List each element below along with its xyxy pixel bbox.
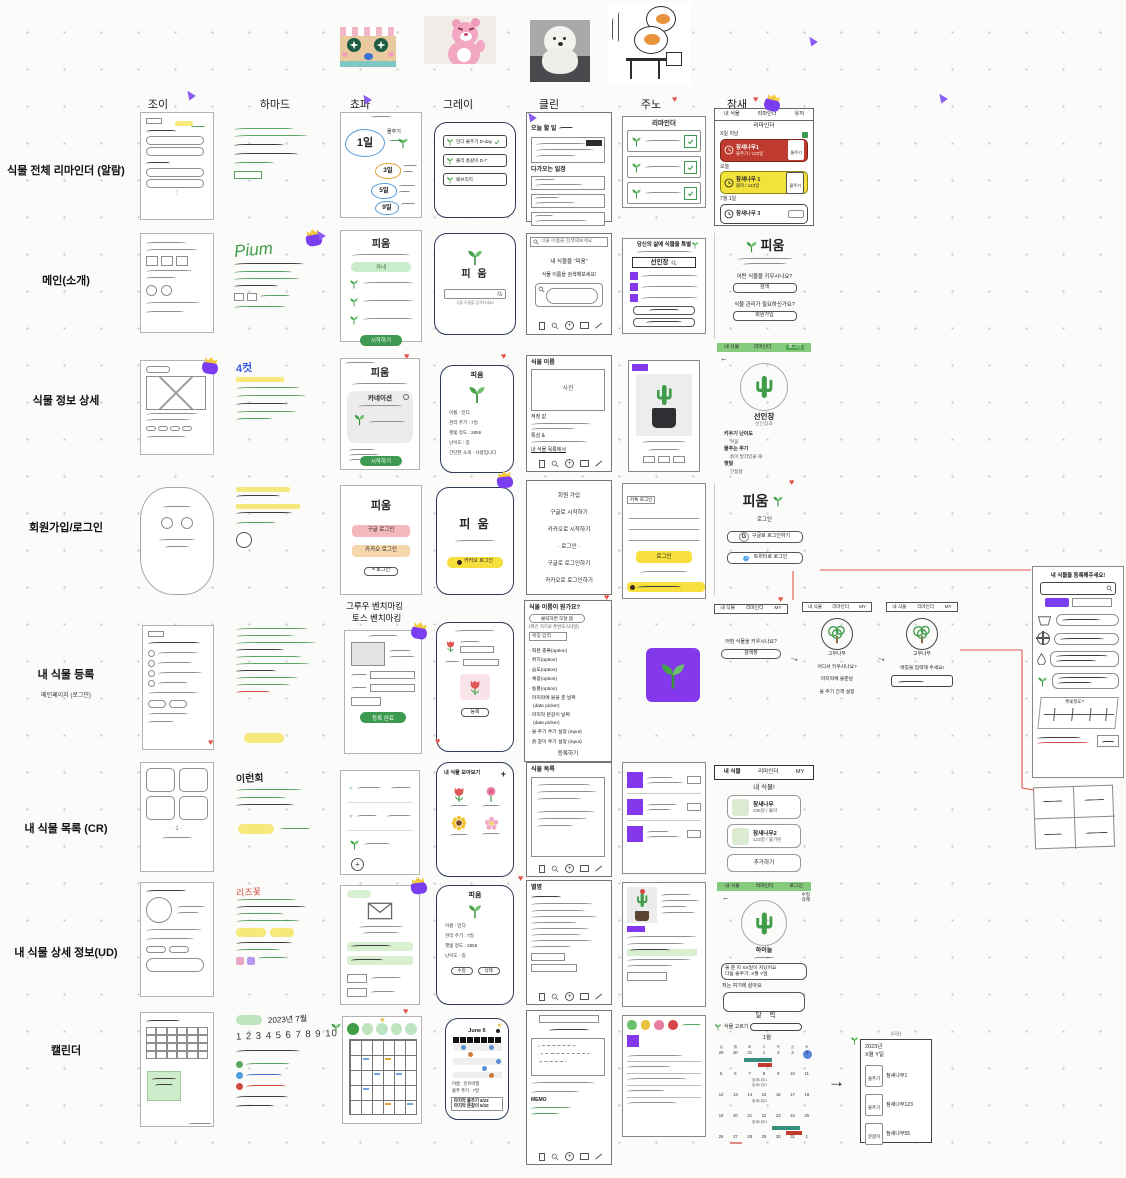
list-item: 27	[728, 1134, 742, 1155]
hamad-detail-notes[interactable]: 4컷	[236, 360, 328, 450]
juno-main-wireframe[interactable]: 당신의 삶에 식물을 특별 선인장	[622, 238, 706, 334]
list-item: 햇빛 정도 : 2855	[445, 943, 505, 949]
sparrow-list-wireframe[interactable]: 내 식물리마인더MY 내 식물! 참새나무235일 / 물마 참새나무2123일…	[714, 765, 814, 877]
tree-icon	[911, 623, 933, 645]
add-plant-button[interactable]: 추가하기	[727, 854, 801, 872]
event-bar-water	[772, 1126, 800, 1130]
overdue-card[interactable]: 참새나무1물주기 / 123일 물주기	[720, 139, 808, 162]
check-box[interactable]	[684, 135, 697, 148]
water-drop-icon	[1037, 653, 1046, 665]
kakao-login-button[interactable]: 카카오 로그인	[447, 557, 503, 568]
list-item: · 채광(option)	[529, 675, 607, 682]
event-bar-repot	[786, 1131, 802, 1135]
tab-reminder[interactable]: 리마인더	[758, 112, 777, 118]
joy-calendar-sketch[interactable]	[140, 1012, 214, 1127]
word2-handwriting: 리즈꽃	[236, 882, 328, 899]
cactus-icon	[753, 910, 775, 937]
list-item: 20	[728, 1113, 742, 1134]
tab-bar: 내 식물 리마인더 로그인	[717, 343, 811, 352]
kakao-banner[interactable]	[627, 582, 705, 592]
row-label-main[interactable]: 메인(소개)	[2, 272, 130, 288]
juno-reminder-wireframe[interactable]: 리마인더	[622, 116, 706, 208]
search-icon	[497, 291, 503, 297]
list-item: 29	[757, 1134, 771, 1155]
clock-icon	[724, 145, 734, 155]
gray-main-phone[interactable]: 피 움 식물 이름을 검색하세요!	[434, 233, 516, 335]
sticker-patch-2	[644, 34, 660, 45]
list-item: · 습도(option)	[529, 666, 607, 673]
list-item: 관리 주기 : 7일	[445, 933, 505, 939]
list-item: 카카오로 로그인하기	[545, 576, 593, 584]
plant-fields: 이름 : 민디관리 주기 : 7일햇빛 정도 : 2855난이도 : 중간단한 …	[449, 410, 505, 456]
add-icon: +	[565, 864, 574, 873]
search-icon	[551, 1153, 559, 1161]
tulip-icon	[445, 639, 456, 653]
chopa-alarm-wireframe[interactable]: 1일 물주기 3일 5일 9일	[340, 112, 422, 218]
gray-register-phone[interactable]: 등록	[436, 622, 514, 752]
done-tag	[586, 140, 602, 146]
kakao-login-button[interactable]: 로그인	[636, 551, 692, 563]
list-item: (date picker)	[529, 721, 607, 726]
login-lines: 회원 가입구글로 시작하기카카오로 시작하기· 로그인 ·구글로 로그인하기카카…	[527, 491, 611, 584]
search-icon	[1106, 585, 1113, 592]
chopa-detail-wireframe[interactable]: 피움 카네이션 시작하기	[340, 358, 420, 470]
list-item: 5	[714, 1071, 728, 1092]
joy-register-sketch[interactable]	[142, 625, 214, 750]
notification-row: 민디 물주기 D-day	[443, 135, 507, 148]
pink-bear-image[interactable]	[424, 16, 496, 64]
clean-main-wireframe[interactable]: 식물 이름을 검색해보세요 내 식물을 "피움" 식물 이름을 검색해보세요! …	[526, 233, 612, 335]
list-item: 30	[728, 1050, 742, 1071]
sprout-icon	[691, 241, 699, 249]
search-bar[interactable]: 식물 이름을 검색해보세요	[530, 237, 608, 247]
row-label-register[interactable]: 내 식물 등록	[2, 666, 130, 682]
hamad-calendar-notes[interactable]: 2023년 7월 1 2 3 4 5 6 7 8 9 10	[236, 1015, 328, 1135]
plain-login-button[interactable]: = 로그인	[364, 567, 398, 576]
list-item: (date picker)	[529, 704, 607, 709]
heart-sticker[interactable]: ♥	[789, 478, 794, 487]
clean-list-wireframe[interactable]: 식물 목록 +	[526, 762, 612, 877]
day9-bubble: 9일	[375, 201, 399, 215]
list-item: 31	[785, 1134, 799, 1155]
clean-calendar-wireframe[interactable]: MEMO +	[526, 1010, 612, 1165]
register-done-button[interactable]: 등록 완료	[360, 712, 406, 723]
clean-login-wireframe[interactable]: 회원 가입구글로 시작하기카카오로 시작하기· 로그인 ·구글로 로그인하기카카…	[526, 480, 612, 595]
plant-avatar[interactable]	[391, 1023, 403, 1035]
star-badge: ★	[379, 1016, 385, 1024]
sparrow-main-wireframe[interactable]: 피움 어떤 식물을 키우시나요? 검색 식물 관리가 필요하신가요? 회원가입	[714, 233, 814, 339]
sparrow-register-panel-2[interactable]: 내 식물리마인더MY 고무나무 어디서 키우시나요? 마지막에 물준날 물 주기…	[802, 602, 872, 716]
row-sublabel-register: 메인페이지 (로그인)	[2, 690, 130, 699]
joy-list-sketch[interactable]: · 1 ·	[140, 762, 214, 872]
list-item: · 마지막에 물을 준 날짜	[529, 694, 607, 701]
4cut-handwriting: 4컷	[236, 357, 329, 376]
plant-avatar-circle	[741, 900, 787, 946]
sprout-icon	[850, 1036, 859, 1045]
google-login-button[interactable]: 구글 로그인	[352, 525, 410, 537]
column-header-hamad[interactable]: 하마드	[245, 96, 305, 112]
upcoming-card[interactable]: 참새나무 3	[720, 204, 808, 224]
search-button[interactable]: 검색	[733, 283, 797, 293]
flower-doodle	[627, 1020, 637, 1030]
calendar-icon	[580, 993, 589, 1000]
photo-placeholder	[351, 642, 385, 666]
list-item: 28	[743, 1134, 757, 1155]
hamad-login-notes[interactable]	[236, 487, 328, 572]
day1-label: 물주기	[387, 130, 401, 136]
gray-mydetail-phone[interactable]: 피움 이름 : 민디관리 주기 : 7일햇빛 정도 : 2855난이도 : 중 …	[436, 885, 514, 1005]
benchmark-note-2[interactable]: 토스 벤치마킹	[352, 614, 401, 624]
sparrow-calendar-wireframe[interactable]: 달 력 식물 고르기 1월 일월화수목금토 293031123456789101…	[714, 1012, 820, 1176]
heart-sticker[interactable]: ♥	[672, 95, 677, 104]
big-search-box[interactable]	[535, 283, 603, 307]
cheek-right	[388, 52, 394, 57]
flower-doodle	[654, 1020, 664, 1030]
clean-mydetail-wireframe[interactable]: 별명 +	[526, 880, 612, 1005]
juno-list-wireframe[interactable]	[622, 762, 706, 874]
search-icon	[551, 460, 559, 468]
search-box[interactable]: 선인장	[632, 257, 696, 268]
date-handwriting: 2023년 7월	[268, 1014, 308, 1025]
list-item: 이름 : 민디	[449, 410, 505, 416]
chopa-main-wireframe[interactable]: 피움 카네 시작하기	[340, 230, 422, 342]
app-title: 피움	[341, 500, 421, 513]
list-item: 카카오로 시작하기	[548, 525, 591, 533]
plant-avatar[interactable]	[347, 1023, 359, 1035]
big-arrow-icon: →	[828, 1072, 845, 1092]
calendar-icon	[580, 1153, 589, 1160]
white-button[interactable]	[1072, 598, 1112, 607]
gray-login-phone[interactable]: 피 움 카카오 로그인	[436, 487, 514, 595]
gray-list-phone[interactable]: 내 식물 모아보기 +	[436, 762, 514, 877]
calendar-icon[interactable]	[580, 322, 589, 329]
reminder-row	[627, 182, 701, 204]
hat-stripe	[340, 27, 396, 36]
list-item: 23	[771, 1113, 785, 1134]
sticker-chair	[666, 52, 682, 66]
heart-sticker[interactable]: ♥	[518, 874, 523, 883]
juno-purple-sticker[interactable]	[646, 648, 700, 702]
purple-tag	[627, 926, 645, 932]
heart-sticker[interactable]: ♥	[778, 595, 783, 604]
column-header-joy[interactable]: 조이	[128, 96, 188, 112]
list-item: · 물 주기 주기 설정 (input)	[529, 728, 607, 735]
reminder-row	[627, 156, 701, 178]
search-box[interactable]	[1040, 582, 1116, 595]
plant-card[interactable]: 카네이션	[347, 391, 413, 443]
chopa-list-wireframe[interactable]: +	[340, 770, 420, 875]
juno-detail-wireframe[interactable]	[628, 360, 700, 472]
bear-arm	[476, 40, 485, 52]
sparrow-detail-wireframe[interactable]: 내 식물 리마인더 로그인 ← 선인장 선인장과 키우기 난이도 쉬움 물주는 …	[714, 343, 814, 473]
dog-body	[542, 48, 578, 74]
check-box[interactable]	[684, 161, 697, 174]
plant-card[interactable]: 참새나무235일 / 물마	[727, 795, 801, 819]
register-button[interactable]: 등록	[461, 708, 489, 717]
sparrow-calendar-modal[interactable]: (모달) 2023년 X월 Y일 물주기참새나무1 물주기참새나무123 분갈이…	[860, 1032, 932, 1148]
plant-avatar[interactable]	[405, 1023, 417, 1035]
juno-mydetail-wireframe[interactable]	[622, 882, 706, 1007]
column-header-chopa[interactable]: 쵸파	[330, 96, 390, 112]
google-login-button[interactable]: G 구글로 로그인하기	[727, 531, 803, 543]
juno-login-wireframe[interactable]: 카톡 로그인 로그인	[622, 483, 706, 599]
teal-stripe	[340, 61, 396, 67]
hamad-alarm-notes[interactable]	[234, 125, 326, 205]
purple-square	[627, 1035, 639, 1047]
note-bubble	[1052, 673, 1119, 689]
search-input[interactable]	[444, 289, 506, 299]
column-header-clean[interactable]: 클린	[519, 96, 579, 112]
list-item: 18	[800, 1092, 814, 1113]
bookmark-icon	[539, 865, 545, 873]
search-icon	[538, 286, 545, 293]
delete-link[interactable]: 삭제	[802, 897, 810, 902]
heart-sticker[interactable]: ♥	[753, 95, 758, 104]
edit-icon	[595, 865, 602, 872]
start-button[interactable]: 시작하기	[360, 456, 402, 466]
star-eye-left	[347, 38, 361, 52]
plant-thumb	[732, 828, 749, 845]
app-title: 피움	[341, 239, 421, 251]
clock-icon	[724, 209, 734, 219]
edit-icon[interactable]	[595, 322, 602, 329]
joy-mydetail-sketch[interactable]	[140, 882, 214, 997]
check-icon	[494, 139, 500, 145]
dot-icon	[496, 1029, 500, 1033]
gray-alarm-phone[interactable]: 민디 물주기 D-day 졸리 흙갈이 D-7 페브리지	[434, 122, 516, 218]
joy-login-sketch[interactable]	[140, 487, 214, 595]
screen-title: 내 식물 모아보기	[444, 771, 480, 777]
twitter-login-button[interactable]: 트위터로 로그인	[727, 552, 803, 564]
day1-bubble: 1일	[345, 129, 385, 157]
whiteboard-canvas[interactable]: 조이 하마드 쵸파 그레이 클린 주노 참새 식물 전체 리마인더 (알람) 메…	[0, 0, 1126, 1178]
tab-user[interactable]: 유저	[795, 112, 805, 118]
tree-icon	[826, 623, 848, 645]
search-hint: 식물 이름을 검색하세요!	[435, 301, 515, 305]
bookmark-icon	[539, 460, 545, 468]
heart-sticker[interactable]: ♥	[604, 593, 609, 602]
row-label-list[interactable]: 내 식물 목록 (CR)	[2, 820, 130, 836]
clean-register-wireframe[interactable]: 식물 이름이 뭔가요? 클릭하면 모달 뜸 (여긴 거기로 폰번호스타일) 애칭…	[524, 600, 612, 762]
heart-sticker[interactable]: ♥	[403, 1007, 408, 1016]
plant-select[interactable]	[750, 1023, 802, 1031]
search-icon	[533, 239, 539, 245]
column-header-gray[interactable]: 그레이	[428, 96, 488, 112]
tab-bar: 내 식물리마인더MY	[802, 602, 872, 612]
add-icon[interactable]: +	[565, 321, 574, 330]
sparrow-mydetail-wireframe[interactable]: 내 식물리마인더로그인 수정 삭제 ← 하이늘 물 준 지 XX일이 지났어요 …	[714, 882, 814, 1008]
sprout-icon	[714, 1023, 722, 1031]
note-bubble	[1054, 633, 1119, 645]
edit-icon	[595, 993, 602, 1000]
plant-thumb	[732, 799, 749, 816]
row-label-login[interactable]: 회원가입/로그인	[2, 519, 130, 535]
avatar-chopper-image[interactable]	[340, 27, 396, 67]
tab-myplants[interactable]: 내 식물	[724, 345, 739, 351]
gray-calendar-phone[interactable]: ★ June 6 이름 : 민트바질 물주 주기 : 7일 마지막 물주기 6/…	[445, 1018, 509, 1120]
tab-myplants[interactable]: 내 식물	[724, 112, 740, 118]
list-item: 11	[800, 1071, 814, 1092]
clock-icon	[724, 178, 734, 188]
row-label-alarm[interactable]: 식물 전체 리마인더 (알람)	[2, 162, 130, 178]
nickname-input[interactable]: 애칭 입력	[529, 632, 567, 641]
row-label-calendar[interactable]: 캘린더	[2, 1042, 130, 1058]
day3-bubble: 3일	[375, 163, 401, 179]
edit-icon	[595, 460, 602, 467]
action-button[interactable]	[633, 306, 695, 315]
plant-tile[interactable]	[445, 814, 473, 839]
bear-sticker-image[interactable]	[608, 2, 690, 86]
hamad-main-notes[interactable]: Pium	[234, 238, 326, 333]
cactus-photo	[636, 374, 692, 436]
sprout-sketch-icon	[353, 413, 366, 426]
chopa-mydetail-wireframe[interactable]	[340, 885, 420, 1005]
heart-sticker[interactable]: ♥	[404, 352, 409, 361]
row-label-plant-detail[interactable]: 식물 정보 상세	[2, 392, 130, 408]
app-title: 피움	[437, 892, 513, 900]
plant-icon	[1037, 676, 1048, 687]
start-button[interactable]: 시작하기	[360, 335, 402, 346]
quadrant-sketch[interactable]	[1033, 785, 1115, 850]
crown-sticker[interactable]	[410, 881, 428, 895]
plant-avatar[interactable]	[362, 1023, 374, 1035]
list-item: 구글로 시작하기	[550, 508, 588, 516]
thumb	[627, 772, 643, 788]
list-item: 16	[771, 1092, 785, 1113]
bird-icon	[742, 554, 751, 563]
row-label-mydetail[interactable]: 내 식물 상세 정보(UD)	[2, 944, 130, 960]
edit-button[interactable]: 수정	[451, 967, 473, 975]
sparrow-reminder-wireframe[interactable]: 내 식물 리마인더 유저 리마인더 X일 지남 참새나무1물주기 / 123일 …	[714, 108, 814, 226]
water-button[interactable]: 물주기	[788, 140, 804, 160]
hamad-mydetail-notes[interactable]: 리즈꽃	[236, 885, 328, 997]
numbers-handwriting: 1 2 3 4 5 6 7 8 9 10	[236, 1029, 328, 1043]
heart-sticker[interactable]: ♥	[501, 352, 506, 361]
logo-text: 피 움	[435, 269, 515, 281]
kakao-icon	[457, 560, 462, 565]
water-button[interactable]: 물주기	[786, 172, 804, 194]
joy-detail-sketch[interactable]	[140, 360, 214, 455]
notification-row: 페브리지	[443, 173, 507, 186]
note-bubble	[1050, 651, 1119, 667]
flower-doodle	[641, 1020, 651, 1030]
list-item: · 마지막 분갈이 날짜	[529, 711, 607, 718]
benchmark-note-1[interactable]: 그루우 벤치마킹	[346, 602, 403, 612]
tab-reminder[interactable]: 리마인더	[754, 345, 772, 351]
clean-today-wireframe[interactable]: 오늘 할 일 다가오는 일정	[526, 112, 612, 222]
bear-nose	[464, 33, 468, 36]
chopa-login-wireframe[interactable]: 피움 구글 로그인 카카오 로그인 = 로그인	[340, 485, 422, 595]
search-box[interactable]: 검색창	[721, 649, 781, 659]
sunlight-slider[interactable]: 햇빛정도?	[1037, 697, 1118, 729]
plant-card[interactable]: 참새나무2123일 / 꽃기린	[727, 824, 801, 848]
category-chip[interactable]: 카네	[351, 262, 411, 272]
green-plant-doodle	[330, 1022, 342, 1034]
action-button[interactable]	[633, 318, 695, 327]
gear-icon[interactable]	[403, 394, 409, 400]
sprout-doodle-icon	[397, 137, 409, 149]
plant-tile[interactable]	[445, 785, 473, 810]
hamad-list-notes[interactable]: 이런회	[236, 772, 328, 860]
flow-arrow-icon: →	[788, 651, 802, 666]
signup-button[interactable]: 회원가입	[733, 311, 797, 321]
joy-main-sketch[interactable]	[140, 233, 214, 333]
sparrow-register-panel-3[interactable]: 내 식물리마인더MY 고무나무 애칭을 입력해 주세요!	[886, 602, 958, 702]
list-item: 2	[771, 1050, 785, 1071]
sparrow-register-panel-1[interactable]: 내 식물리마인더MY 어떤 식물을 키우시나요? 검색창	[714, 604, 788, 692]
pot-icon	[1037, 615, 1052, 626]
plant-tile[interactable]	[477, 785, 505, 810]
heart-sticker[interactable]: ♥	[208, 738, 213, 747]
search-icon	[671, 260, 677, 266]
chopa-calendar-wireframe[interactable]: ★	[342, 1016, 422, 1124]
calendar-grid-sketch	[349, 1039, 417, 1115]
sprout-logo-icon	[466, 248, 484, 266]
tab-bar: 내 식물리마인더MY	[714, 604, 788, 614]
tab-bar: 내 식물리마인더로그인	[717, 882, 811, 891]
sprout-logo-icon	[745, 240, 758, 253]
purple-button[interactable]	[1045, 598, 1069, 607]
list-item: 이름 : 민디	[445, 923, 505, 929]
bookmark-icon[interactable]	[539, 322, 545, 330]
juno-calendar-wireframe[interactable]	[622, 1015, 706, 1137]
joy-alarm-sketch[interactable]: ⋮	[140, 112, 214, 220]
crown-sticker[interactable]	[496, 475, 513, 489]
tab-login[interactable]: 로그인	[786, 345, 803, 351]
register-button[interactable]: 등록하기	[529, 751, 607, 757]
list-item: 29	[714, 1050, 728, 1071]
notification-row: 졸리 흙갈이 D-7	[443, 154, 507, 167]
kakao-login-button[interactable]: 카카오 로그인	[352, 545, 410, 557]
farright-register-wireframe[interactable]: 내 식물을 등록해주세요! 햇빛정도?	[1032, 566, 1124, 778]
tab-bar: 내 식물리마인더MY	[714, 765, 814, 780]
check-box[interactable]	[684, 187, 697, 200]
nickname-input[interactable]	[891, 675, 953, 687]
edit-icon	[595, 1153, 602, 1160]
app-title: 피움	[441, 372, 513, 380]
hamad-register-notes[interactable]	[236, 625, 328, 755]
search-icon[interactable]	[551, 322, 559, 330]
chopa-register-wireframe[interactable]: 등록 완료	[344, 630, 422, 754]
delete-button[interactable]: 삭제	[478, 967, 500, 975]
heart-sticker[interactable]: ♥	[435, 737, 440, 746]
add-plant-button[interactable]: +	[351, 858, 364, 871]
reminder-row	[627, 130, 701, 152]
sprout-doodle-icon	[770, 495, 786, 507]
logo-text: 피 움	[437, 518, 513, 532]
list-item: 26	[714, 1134, 728, 1155]
note-bubble	[1056, 614, 1119, 626]
today-card[interactable]: 참새나무 1물마 / 123일 물주기	[720, 171, 808, 194]
sticker-table-leg1	[630, 61, 632, 79]
gray-detail-phone[interactable]: 피움 이름 : 민디관리 주기 : 7일햇빛 정도 : 2855난이도 : 중간…	[440, 365, 514, 473]
plant-tile[interactable]	[477, 814, 505, 839]
search-icon	[551, 865, 559, 873]
clean-detail-wireframe[interactable]: 식물 이름 사진 적정 값 특성 & 내 식물 목록에서 +	[526, 355, 612, 472]
plant-sticker-icon	[658, 660, 688, 690]
list-item: 구글로 로그인하기	[548, 559, 591, 567]
back-arrow-icon[interactable]: ←	[720, 354, 814, 363]
plant-avatar[interactable]: ★	[376, 1023, 388, 1035]
sparrow-login-wireframe[interactable]: 피움 로그인 G 구글로 로그인하기 트위터로 로그인	[714, 483, 814, 595]
list-item: · 흙 갈이 주기 설정 (input)	[529, 738, 607, 745]
thumb	[627, 826, 643, 842]
green-sticky-note[interactable]	[147, 1071, 181, 1101]
add-button[interactable]: +	[501, 769, 506, 779]
list-item: 햇빛 정도 : 2855	[449, 430, 505, 436]
logo-text: 피움	[743, 493, 769, 509]
white-dog-photo[interactable]	[530, 20, 590, 82]
